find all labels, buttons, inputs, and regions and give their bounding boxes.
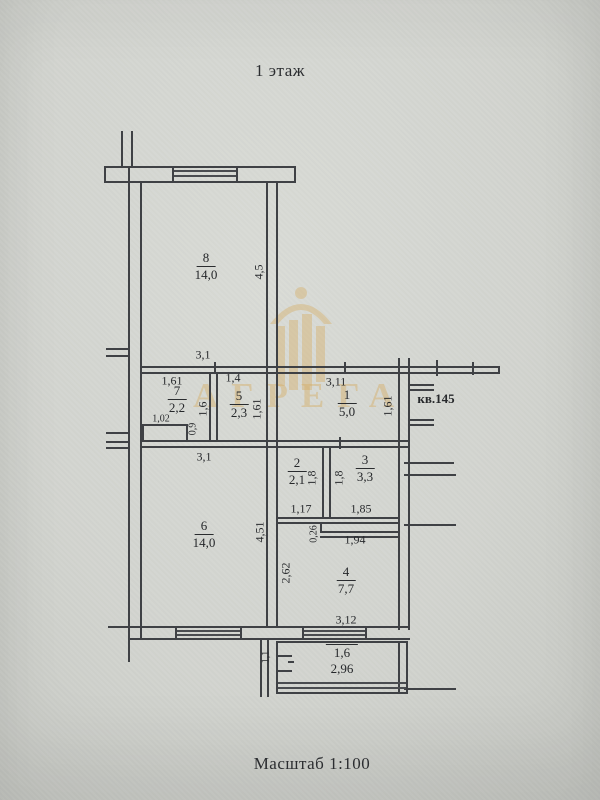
- wall-segment: [404, 462, 454, 464]
- wall-segment: [278, 517, 400, 519]
- floor-plan-page: 1 этаж АГРЕГА 8 14,0 7 2,2 5 2,3 1 5,0: [0, 0, 600, 800]
- wall-segment: [320, 522, 322, 533]
- room-4-number: 4: [337, 564, 356, 581]
- dim-room8-height: 4,5: [252, 265, 267, 280]
- wall-segment: [294, 166, 296, 183]
- wall-segment: [410, 372, 500, 374]
- wall-segment: [240, 626, 242, 640]
- window-segment: [174, 170, 236, 172]
- tick-mark: [472, 362, 474, 375]
- wall-segment: [410, 424, 434, 426]
- dim-room7-niche-h: 0,9: [188, 423, 199, 436]
- wall-segment: [276, 181, 278, 627]
- dim-room2-right: 1,8: [305, 471, 320, 486]
- wall-segment: [404, 474, 456, 476]
- wall-segment: [260, 640, 262, 697]
- room-8-label: 8 14,0: [195, 250, 218, 282]
- dim-room8-width: 3,1: [196, 348, 211, 363]
- dim-room4-top: 1,94: [345, 533, 366, 548]
- wall-segment: [365, 626, 367, 640]
- window-segment: [304, 630, 365, 632]
- dim-room1-right: 1,61: [381, 396, 396, 417]
- wall-segment: [216, 373, 218, 442]
- wall-segment: [121, 131, 123, 168]
- dim-room5-top: 1,4: [226, 371, 241, 386]
- room-7-area: 2,2: [168, 400, 187, 416]
- wall-segment: [131, 131, 133, 168]
- wall-segment: [140, 446, 410, 448]
- wall-segment: [404, 524, 456, 526]
- wall-segment: [128, 166, 130, 640]
- wall-segment: [267, 640, 269, 697]
- wall-segment: [410, 366, 500, 368]
- dim-room7-niche-w: 1,02: [152, 414, 170, 425]
- room-2-number: 2: [288, 455, 307, 472]
- tick-mark: [339, 437, 341, 449]
- dim-balcony-door: 1,1: [261, 651, 272, 664]
- dim-room4-step: 0,26: [309, 525, 320, 543]
- window-segment: [174, 175, 236, 177]
- room-3-area: 3,3: [356, 469, 375, 485]
- window-segment: [304, 634, 365, 636]
- dim-room7-top: 1,61: [162, 374, 183, 389]
- dim-room6-right: 4,51: [253, 522, 268, 543]
- scale-label: Масштаб 1:100: [254, 754, 371, 774]
- tick-mark: [344, 362, 346, 374]
- room-6-area: 14,0: [193, 535, 216, 551]
- room-3-label: 3 3,3: [356, 452, 375, 484]
- wall-segment: [410, 419, 434, 421]
- room-8-number: 8: [197, 250, 216, 267]
- dim-room1-top: 3,11: [326, 375, 347, 390]
- wall-segment: [266, 181, 268, 627]
- tick-mark: [214, 362, 216, 374]
- wall-segment: [128, 638, 410, 640]
- wall-segment: [106, 441, 128, 443]
- floor-title: 1 этаж: [255, 61, 305, 81]
- apartment-label: кв.145: [417, 391, 454, 407]
- dim-room7-right: 1,6: [196, 402, 211, 417]
- room-8-area: 14,0: [195, 267, 218, 283]
- dim-room3-left: 1,8: [332, 471, 347, 486]
- wall-segment: [106, 432, 128, 434]
- window-segment: [177, 634, 240, 636]
- wall-segment: [128, 640, 130, 662]
- balcony-area: 1,6: [326, 644, 358, 661]
- wall-segment: [104, 166, 106, 183]
- wall-segment: [108, 626, 128, 628]
- dim-room2-bottom: 1,17: [291, 502, 312, 517]
- wall-segment: [106, 447, 128, 449]
- wall-outline: [142, 424, 188, 442]
- room-5-area: 2,3: [230, 405, 249, 421]
- room-4-area: 7,7: [337, 581, 356, 597]
- wall-segment: [408, 358, 410, 630]
- room-5-number: 5: [230, 388, 249, 405]
- wall-segment: [140, 181, 142, 640]
- wall-segment: [322, 448, 324, 519]
- wall-segment: [175, 626, 177, 640]
- wall-segment: [404, 688, 456, 690]
- room-2-label: 2 2,1: [288, 455, 307, 487]
- room-2-area: 2,1: [288, 472, 307, 488]
- wall-segment: [302, 626, 304, 640]
- wall-segment: [140, 366, 410, 368]
- dim-room4-left: 2,62: [279, 563, 294, 584]
- room-6-label: 6 14,0: [193, 518, 216, 550]
- room-4-label: 4 7,7: [337, 564, 356, 596]
- wall-segment: [106, 355, 128, 357]
- wall-segment: [236, 166, 238, 183]
- dim-room3-bottom: 1,85: [351, 502, 372, 517]
- dim-room4-bottom: 3,12: [336, 613, 357, 628]
- wall-segment: [278, 522, 400, 524]
- room-1-area: 5,0: [338, 404, 357, 420]
- balcony-width: 2,96: [326, 661, 358, 677]
- window-segment: [177, 630, 240, 632]
- wall-segment: [128, 626, 410, 628]
- room-6-number: 6: [195, 518, 214, 535]
- dim-room5-right: 1,61: [250, 399, 265, 420]
- balcony-label: 1,6 2,96: [326, 644, 358, 676]
- wall-segment: [410, 384, 434, 386]
- tick-mark: [498, 366, 500, 374]
- dim-room6-top: 3,1: [197, 450, 212, 465]
- room-3-number: 3: [356, 452, 375, 469]
- tick-mark: [436, 360, 438, 376]
- room-1-label: 1 5,0: [338, 387, 357, 419]
- wall-segment: [106, 348, 128, 350]
- wall-segment: [398, 358, 400, 630]
- room-5-label: 5 2,3: [230, 388, 249, 420]
